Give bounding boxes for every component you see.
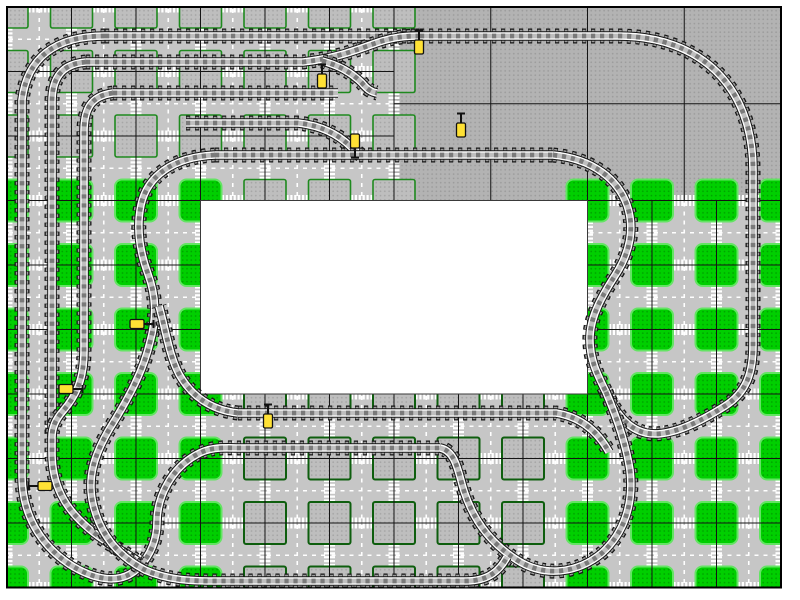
layout-canvas[interactable] [0,0,800,600]
white-reserved-area[interactable] [201,201,588,395]
track-plan-window [0,0,800,600]
